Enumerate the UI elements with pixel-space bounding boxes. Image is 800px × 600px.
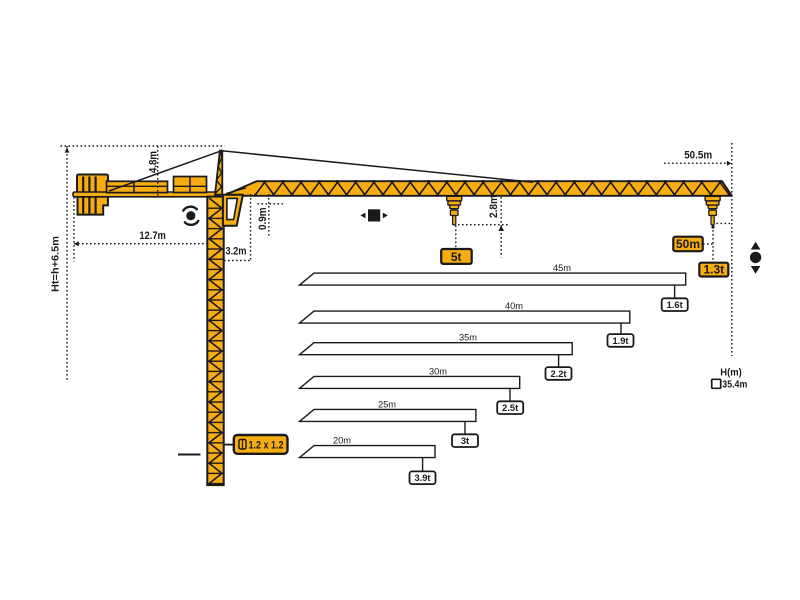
svg-text:1.6t: 1.6t [667, 300, 683, 310]
svg-text:30m: 30m [429, 366, 447, 376]
svg-text:2.8m: 2.8m [488, 195, 500, 218]
svg-text:4.8m: 4.8m [148, 151, 160, 173]
svg-text:2.2t: 2.2t [550, 369, 566, 379]
svg-text:25m: 25m [378, 399, 396, 409]
svg-text:0.9m: 0.9m [257, 207, 269, 230]
svg-text:35m: 35m [459, 333, 477, 343]
svg-text:35.4m: 35.4m [722, 380, 747, 391]
svg-text:1.3t: 1.3t [703, 263, 724, 277]
svg-text:1.9t: 1.9t [612, 336, 628, 346]
svg-text:40m: 40m [505, 301, 523, 311]
svg-text:3t: 3t [461, 436, 469, 446]
svg-text:12.7m: 12.7m [139, 230, 166, 242]
svg-text:3.2m: 3.2m [226, 246, 247, 258]
svg-text:H(m): H(m) [720, 368, 742, 379]
svg-text:50.5m: 50.5m [684, 149, 712, 161]
svg-text:3.9t: 3.9t [414, 473, 430, 483]
svg-text:5t: 5t [451, 250, 462, 264]
svg-text:Ht=h+6.5m: Ht=h+6.5m [50, 236, 62, 292]
svg-text:20m: 20m [333, 436, 351, 446]
svg-text:45m: 45m [553, 263, 571, 273]
svg-text:2.5t: 2.5t [502, 403, 518, 413]
svg-text:1.2 x 1.2: 1.2 x 1.2 [249, 440, 284, 452]
svg-text:50m: 50m [676, 237, 700, 251]
